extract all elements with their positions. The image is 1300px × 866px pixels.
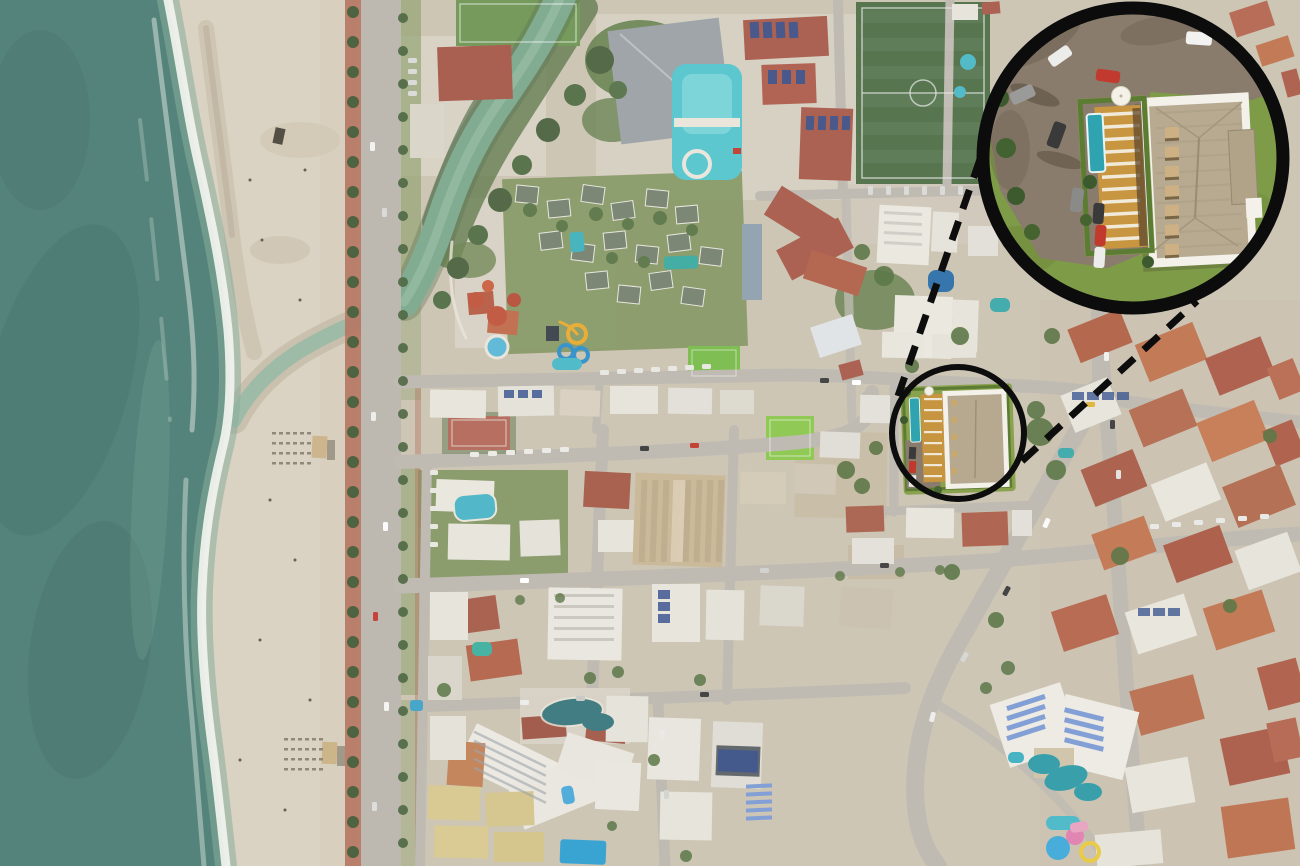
- project-marker-item: [952, 468, 957, 474]
- project-marker-item: [924, 442, 942, 444]
- inset-render-item: [1165, 127, 1180, 139]
- project-marker-item: [975, 400, 976, 478]
- project-marker-item: [920, 394, 945, 483]
- inset-render-item: [1165, 224, 1180, 236]
- inset-car: [1093, 247, 1105, 269]
- inset-render-item: [1165, 166, 1180, 178]
- inset-render-item: [1080, 214, 1092, 226]
- layer-project-marker: [900, 383, 1016, 495]
- project-marker-item: [924, 464, 942, 466]
- project-marker-item: [924, 475, 942, 477]
- inset-render-item: [1165, 244, 1180, 256]
- project-marker-item: [952, 451, 957, 457]
- inset-render-item: [1165, 205, 1180, 217]
- inset-render-item: [1165, 146, 1180, 158]
- inset-render-item: [1228, 129, 1258, 204]
- project-marker-item: [924, 398, 942, 400]
- inset-render-item: [1083, 175, 1097, 189]
- project-marker-item: [952, 417, 957, 423]
- inset-render-item: [1007, 187, 1025, 205]
- project-marker-item: [909, 398, 921, 442]
- inset-pool: [1086, 114, 1105, 173]
- project-marker-item: [900, 416, 908, 424]
- project-marker-item: [924, 420, 942, 422]
- project-marker-item: [909, 461, 917, 473]
- project-marker-item: [924, 409, 942, 411]
- inset-car: [1094, 225, 1106, 247]
- project-marker-item: [924, 431, 942, 433]
- aerial-map-image: [0, 0, 1300, 866]
- map-canvas: [0, 0, 1300, 866]
- project-marker-item: [909, 447, 917, 459]
- inset-render-item: [1245, 198, 1262, 219]
- inset-render-item: [1120, 95, 1123, 98]
- inset-car: [1092, 203, 1104, 225]
- project-marker-item: [925, 387, 934, 396]
- project-marker-item: [924, 453, 942, 455]
- inset-render-item: [1165, 185, 1180, 197]
- inset-render-item: [1142, 256, 1154, 268]
- inset-render-item: [996, 138, 1016, 158]
- project-marker-item: [952, 400, 957, 406]
- inset-render-item: [1024, 224, 1040, 240]
- project-marker-item: [952, 434, 957, 440]
